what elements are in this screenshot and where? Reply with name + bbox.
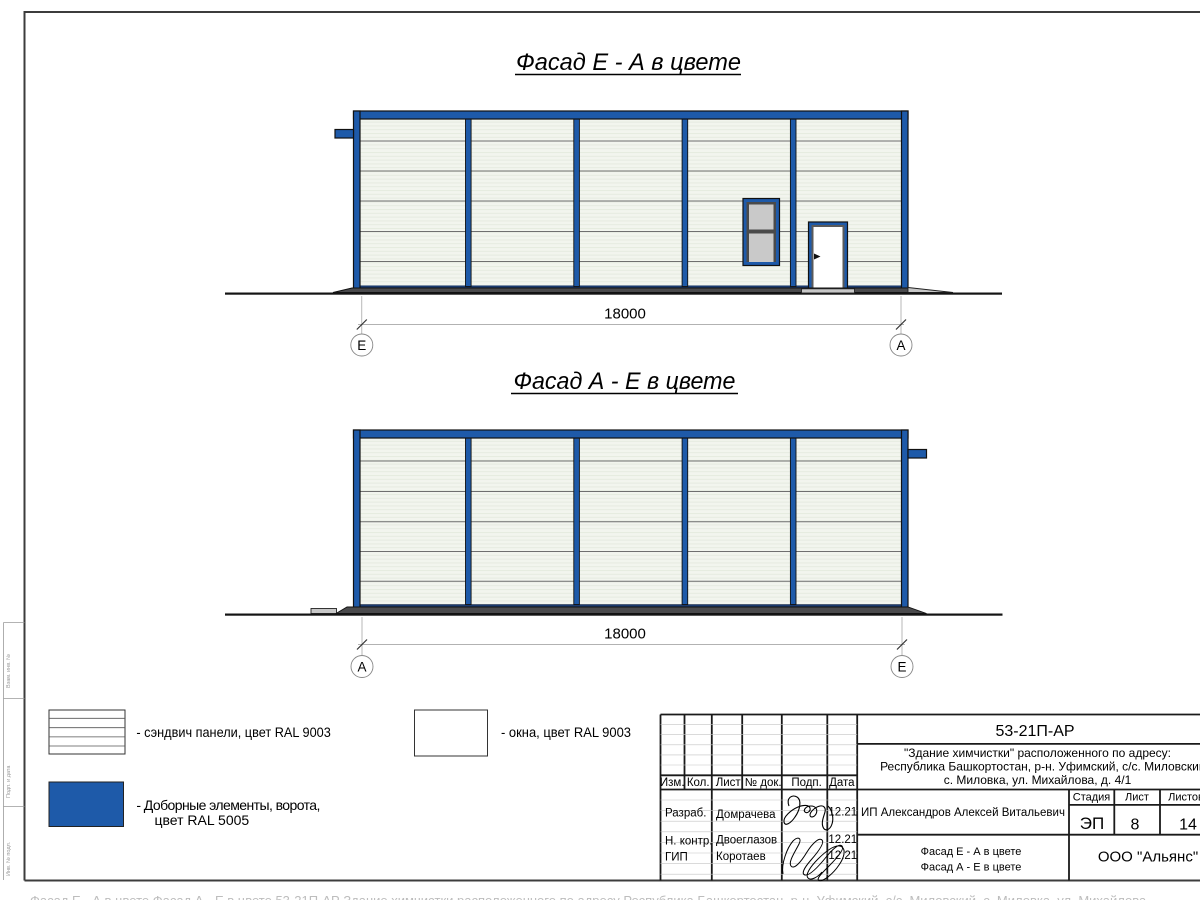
svg-text:- Доборные элементы, ворота,: - Доборные элементы, ворота, bbox=[136, 797, 320, 813]
svg-text:Лист: Лист bbox=[716, 777, 742, 789]
svg-text:Е: Е bbox=[897, 659, 906, 674]
svg-text:Фасад А - Е в цвете: Фасад А - Е в цвете bbox=[921, 862, 1022, 874]
svg-text:Н. контр.: Н. контр. bbox=[665, 836, 712, 848]
svg-text:14: 14 bbox=[1179, 817, 1197, 834]
svg-text:Лист: Лист bbox=[1125, 792, 1149, 804]
svg-text:Фасад Е - А в цвете: Фасад Е - А в цвете bbox=[921, 846, 1022, 858]
svg-text:Фасад Е - А в цвете Фасад А -: Фасад Е - А в цвете Фасад А - Е в цвете … bbox=[30, 893, 1147, 900]
svg-text:Кол.: Кол. bbox=[687, 777, 710, 789]
svg-text:с. Миловка, ул. Михайлова, д.: с. Миловка, ул. Михайлова, д. 4/1 bbox=[944, 773, 1132, 787]
svg-text:ГИП: ГИП bbox=[665, 852, 688, 864]
svg-text:Подп. и дата: Подп. и дата bbox=[6, 765, 12, 798]
svg-text:Стадия: Стадия bbox=[1073, 792, 1111, 804]
svg-text:8: 8 bbox=[1131, 817, 1140, 834]
svg-text:18000: 18000 bbox=[604, 306, 646, 323]
svg-text:Фасад А - Е в цвете: Фасад А - Е в цвете bbox=[514, 368, 736, 395]
svg-text:ЭП: ЭП bbox=[1080, 814, 1104, 833]
svg-text:12.21: 12.21 bbox=[828, 834, 857, 846]
svg-text:18000: 18000 bbox=[604, 626, 646, 643]
svg-text:цвет RAL 5005: цвет RAL 5005 bbox=[155, 812, 250, 828]
svg-text:- окна, цвет RAL 9003: - окна, цвет RAL 9003 bbox=[501, 724, 631, 740]
svg-text:Взам. инв. №: Взам. инв. № bbox=[6, 654, 12, 688]
svg-text:Е: Е bbox=[357, 338, 366, 353]
svg-text:Коротаев: Коротаев bbox=[716, 851, 766, 863]
svg-text:53-21П-АР: 53-21П-АР bbox=[995, 723, 1074, 740]
svg-text:ООО "Альянс": ООО "Альянс" bbox=[1098, 849, 1198, 866]
svg-text:Листов: Листов bbox=[1168, 792, 1200, 804]
svg-text:Республика Башкортостан, р-н.: Республика Башкортостан, р-н. Уфимский, … bbox=[880, 760, 1200, 774]
svg-text:Подп.: Подп. bbox=[791, 777, 822, 789]
svg-text:Разраб.: Разраб. bbox=[665, 808, 706, 820]
svg-text:Фасад Е - А в цвете: Фасад Е - А в цвете bbox=[516, 49, 741, 76]
svg-text:А: А bbox=[357, 659, 366, 674]
svg-text:№ док.: № док. bbox=[745, 777, 782, 789]
svg-text:- сэндвич панели, цвет RAL 900: - сэндвич панели, цвет RAL 9003 bbox=[136, 724, 331, 740]
svg-text:"Здание химчистки" расположенн: "Здание химчистки" расположенного по адр… bbox=[904, 746, 1171, 760]
svg-text:Изм.: Изм. bbox=[660, 777, 685, 789]
svg-text:Двоеглазов: Двоеглазов bbox=[716, 835, 777, 847]
svg-text:12.21: 12.21 bbox=[828, 850, 857, 862]
svg-text:А: А bbox=[896, 338, 905, 353]
svg-text:Домрачева: Домрачева bbox=[716, 809, 776, 821]
svg-text:ИП Александров Алексей Виталье: ИП Александров Алексей Витальевич bbox=[861, 807, 1065, 819]
svg-text:Дата: Дата bbox=[829, 777, 855, 789]
svg-text:Инв. № подл.: Инв. № подл. bbox=[6, 841, 12, 876]
